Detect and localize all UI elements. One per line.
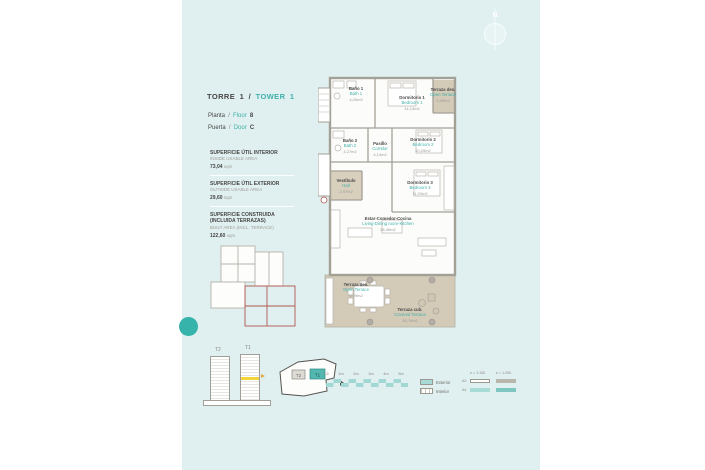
site-tower1-label: T1 — [315, 373, 321, 378]
keyplan-unit-highlight — [245, 286, 295, 326]
legend-interior-swatch — [420, 388, 433, 394]
door-row: Puerta / Door C — [208, 125, 254, 131]
area-built: SUPERFICIE CONSTRUIDA (INCLUIDA TERRAZAS… — [210, 212, 294, 238]
scale-bar-row-bottom — [326, 383, 408, 387]
tower1-elevation — [240, 354, 260, 402]
floor-plan-page: N TORRE 1 / TOWER 1 Planta / Floor 8 Pue… — [0, 0, 705, 470]
area-built-title-es: SUPERFICIE CONSTRUIDA (INCLUIDA TERRAZAS… — [210, 212, 294, 225]
scale-tick: 4m — [383, 372, 388, 376]
title-es: TORRE 1 / — [207, 92, 251, 101]
scale-header-2: e = 1:200 — [496, 371, 511, 375]
area-exterior-value: 29,60 — [210, 195, 223, 201]
scale-tick: 0,5 — [323, 372, 328, 376]
north-label: N — [492, 12, 497, 19]
tower1-label: T1 — [245, 345, 251, 351]
graphic-scale-bar: 0,5 1m 2m 3m 4m 5m — [326, 372, 416, 390]
area-built-unit: sqm — [227, 233, 236, 238]
communal-core — [318, 88, 330, 196]
scale-row-a3-label: A3 — [462, 379, 466, 383]
legend-interior-label: Interior — [436, 389, 449, 394]
area-interior: SUPERFICIE ÚTIL INTERIOR INSIDE USABLE A… — [210, 150, 294, 170]
floor-pointer-arrow-icon — [261, 374, 265, 378]
scale-row-a4-label: A4 — [462, 388, 466, 392]
floor-keyplan — [197, 244, 302, 332]
area-built-value: 122,60 — [210, 233, 225, 239]
area-interior-title-en: INSIDE USABLE AREA — [210, 156, 294, 162]
door-label-es: Puerta — [208, 125, 226, 131]
area-exterior-title-en: OUTSIDE USABLE AREA — [210, 187, 294, 193]
site-tower2-label: T2 — [296, 373, 302, 378]
scale-bar-a3-col1 — [470, 379, 490, 383]
divider — [210, 175, 294, 176]
area-built-title-en: BUILT AREA (INCL. TERRACE) — [210, 225, 294, 231]
tower2-label: T2 — [215, 347, 221, 353]
floor-plan-drawing — [318, 70, 462, 332]
area-interior-unit: sqm — [224, 164, 233, 169]
floor8-highlight-band — [241, 377, 259, 380]
scale-bar-a4-col2 — [496, 388, 516, 392]
area-exterior-value-line: 29,60 sqm — [210, 195, 294, 201]
title-en: TOWER 1 — [256, 92, 295, 101]
main-floor-plan: Baño 1 Bath 1 4,00m2 Dormitorio 1 Bedroo… — [318, 70, 462, 332]
legend-exterior-label: Exterior — [436, 380, 450, 385]
area-interior-value: 73,04 — [210, 164, 223, 170]
door-label-en: Door — [234, 125, 247, 131]
scale-tick: 1m — [338, 372, 343, 376]
scale-tick: 2m — [353, 372, 358, 376]
floor-label-es: Planta — [208, 113, 225, 119]
towers-base — [203, 400, 271, 406]
floor-separator: / — [228, 113, 230, 119]
utility-meter-icon — [321, 197, 327, 203]
floor-row: Planta / Floor 8 — [208, 113, 253, 119]
area-built-value-line: 122,60 sqm — [210, 233, 294, 239]
door-separator: / — [229, 125, 231, 131]
floor-value: 8 — [250, 113, 253, 119]
teal-accent-dot — [179, 317, 198, 336]
area-interior-value-line: 73,04 sqm — [210, 164, 294, 170]
hall-fill — [331, 171, 362, 200]
scale-bar-a4-col1 — [470, 388, 490, 392]
scale-header-1: e = 1:100 — [470, 371, 485, 375]
north-circle — [485, 24, 506, 45]
legend-exterior-swatch — [420, 379, 433, 385]
page-title: TORRE 1 / TOWER 1 — [207, 92, 294, 101]
scale-bar-a3-col2 — [496, 379, 516, 383]
top-terrace-fill — [433, 80, 454, 113]
scale-ratio-table: e = 1:100 e = 1:200 A3 A4 — [462, 371, 522, 399]
door-value: C — [250, 125, 254, 131]
area-exterior: SUPERFICIE ÚTIL EXTERIOR OUTSIDE USABLE … — [210, 181, 294, 201]
area-exterior-unit: sqm — [224, 195, 233, 200]
north-indicator-icon: N — [477, 4, 513, 52]
plan-sheet-panel: N TORRE 1 / TOWER 1 Planta / Floor 8 Pue… — [182, 0, 540, 470]
tower2-elevation — [210, 356, 230, 402]
scale-tick: 3m — [368, 372, 373, 376]
floor-label-en: Floor — [233, 113, 247, 119]
scale-tick: 5m — [398, 372, 403, 376]
divider — [210, 206, 294, 207]
keyplan-gray-outline — [211, 246, 283, 308]
areas-summary: SUPERFICIE ÚTIL INTERIOR INSIDE USABLE A… — [210, 150, 294, 239]
